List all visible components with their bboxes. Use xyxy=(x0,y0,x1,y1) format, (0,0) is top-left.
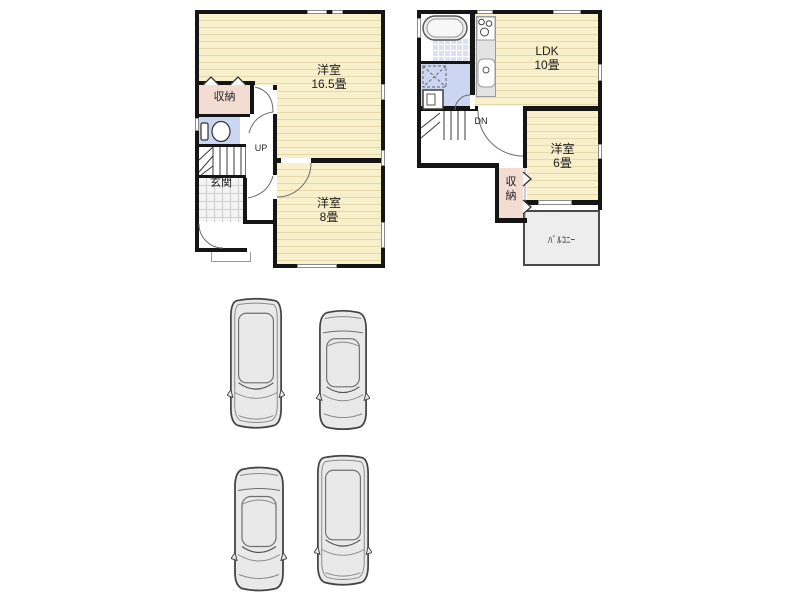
kitchen-counter xyxy=(476,16,496,97)
wall xyxy=(421,61,470,64)
wall xyxy=(250,85,254,114)
car-minivan-2 xyxy=(314,456,372,585)
door-opening xyxy=(281,158,311,163)
wall xyxy=(195,81,255,85)
window-marker xyxy=(332,10,343,14)
wall xyxy=(195,10,199,252)
door-opening xyxy=(273,90,277,114)
room-6-name: 洋室 xyxy=(527,142,598,156)
car-sedan-2 xyxy=(231,468,287,591)
room-large-right xyxy=(277,85,381,158)
wall xyxy=(243,178,247,224)
entrance-step xyxy=(211,252,251,262)
window-marker xyxy=(195,118,199,131)
stairs-area-1f xyxy=(199,147,246,175)
closet-2f-label: 収納 xyxy=(503,176,519,204)
car-minivan-1 xyxy=(227,299,285,428)
stairs-up-label: UP xyxy=(246,143,276,153)
bathroom-tile-floor xyxy=(433,39,470,61)
room-small-size: 8畳 xyxy=(277,210,381,224)
room-6-label: 洋室 6畳 xyxy=(527,142,598,170)
room-6-size: 6畳 xyxy=(527,156,598,170)
window-marker xyxy=(417,18,421,38)
window-marker xyxy=(598,144,602,159)
wall xyxy=(243,220,277,224)
wall xyxy=(495,163,499,223)
window-marker xyxy=(477,10,493,14)
window-marker xyxy=(381,222,385,248)
door-opening xyxy=(470,95,475,109)
window-marker xyxy=(381,150,385,166)
door-opening xyxy=(478,106,523,111)
entrance-porch xyxy=(199,222,243,248)
window-marker xyxy=(598,64,602,81)
stairs-area-2f xyxy=(421,111,468,140)
window-marker xyxy=(553,10,581,14)
window-marker xyxy=(307,10,327,14)
room-large-name: 洋室 xyxy=(277,63,381,77)
window-marker xyxy=(381,84,385,100)
room-small-name: 洋室 xyxy=(277,196,381,210)
wall xyxy=(199,144,246,147)
wall xyxy=(195,10,385,14)
washroom xyxy=(421,64,470,108)
room-large-size: 16.5畳 xyxy=(277,77,381,91)
window-marker xyxy=(297,264,337,268)
closet-1f-label: 収納 xyxy=(199,91,250,104)
wall xyxy=(495,218,527,223)
symbols-overlay xyxy=(0,0,800,600)
toilet-room-1f xyxy=(199,117,240,144)
wall xyxy=(470,14,475,95)
wall xyxy=(199,114,250,117)
window-marker xyxy=(538,200,572,205)
ldk-label: LDK 10畳 xyxy=(496,44,598,72)
room-small-label: 洋室 8畳 xyxy=(277,196,381,224)
car-sedan-1 xyxy=(316,311,370,429)
wall xyxy=(195,248,247,252)
wall xyxy=(417,163,499,168)
balcony-label: ﾊﾞﾙｺﾆｰ xyxy=(523,233,600,246)
room-large-label: 洋室 16.5畳 xyxy=(277,63,381,91)
ldk-name: LDK xyxy=(496,44,598,58)
floorplan-canvas: 洋室 16.5畳 洋室 8畳 収納 玄関 UP LDK 10畳 洋室 6畳 収納… xyxy=(0,0,800,600)
ldk-size: 10畳 xyxy=(496,58,598,72)
entrance-label: 玄関 xyxy=(199,177,243,190)
stairs-down-label: DN xyxy=(468,116,494,126)
